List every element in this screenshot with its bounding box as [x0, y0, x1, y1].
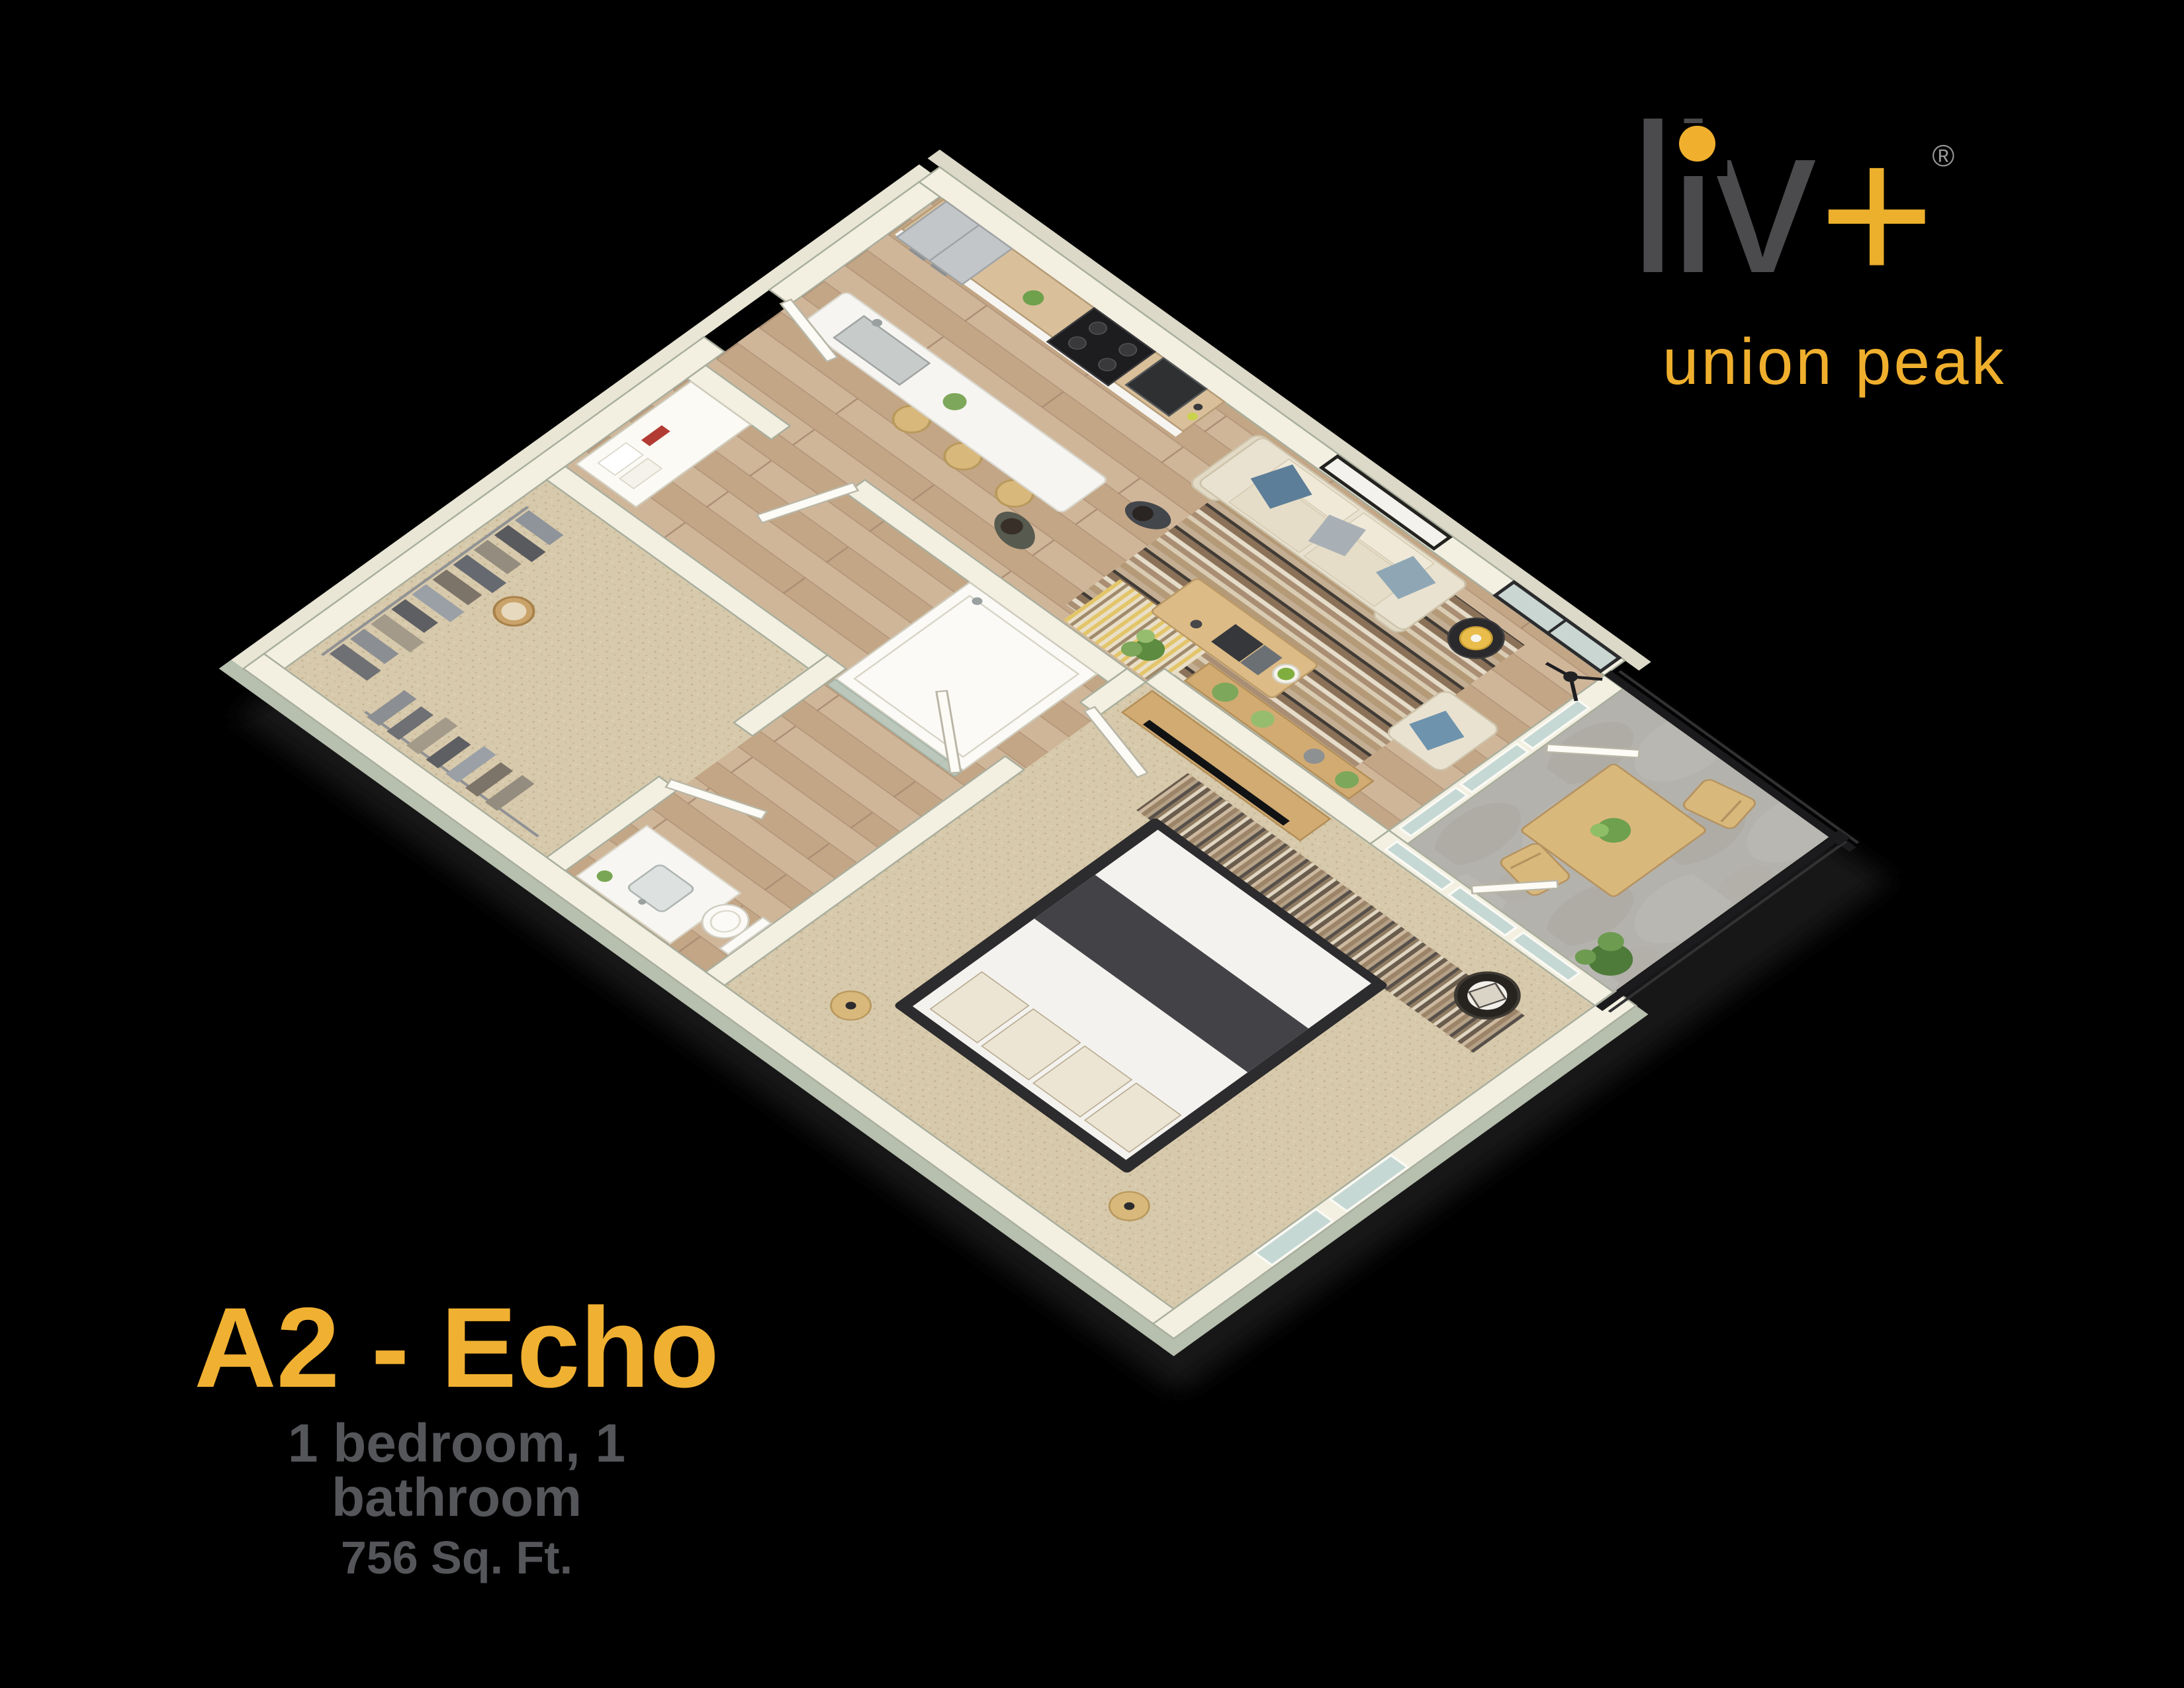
registered-mark: ®: [1932, 140, 1948, 171]
floorplan-caption: A2 - Echo 1 bedroom, 1 bathroom 756 Sq. …: [192, 1291, 721, 1581]
plan-specs: 1 bedroom, 1 bathroom: [192, 1417, 721, 1525]
logo-i-dot: [1679, 126, 1715, 162]
logo-subtitle: union peak: [1629, 324, 2093, 399]
logo-plus-icon: +: [1819, 115, 1928, 313]
logo-letter-l: l: [1629, 80, 1670, 317]
plan-name: A2 - Echo: [192, 1291, 721, 1405]
logo-letter-i: i: [1670, 93, 1710, 305]
plan-area: 756 Sq. Ft.: [192, 1534, 721, 1581]
floorplan-marketing-page: liv+® union peak A2 - Echo 1 bedroom, 1 …: [0, 0, 2184, 1688]
brand-logo: liv+® union peak: [1629, 93, 2093, 399]
logo-letter-v: v: [1710, 80, 1809, 317]
logo-wordmark: liv+®: [1629, 93, 2093, 305]
